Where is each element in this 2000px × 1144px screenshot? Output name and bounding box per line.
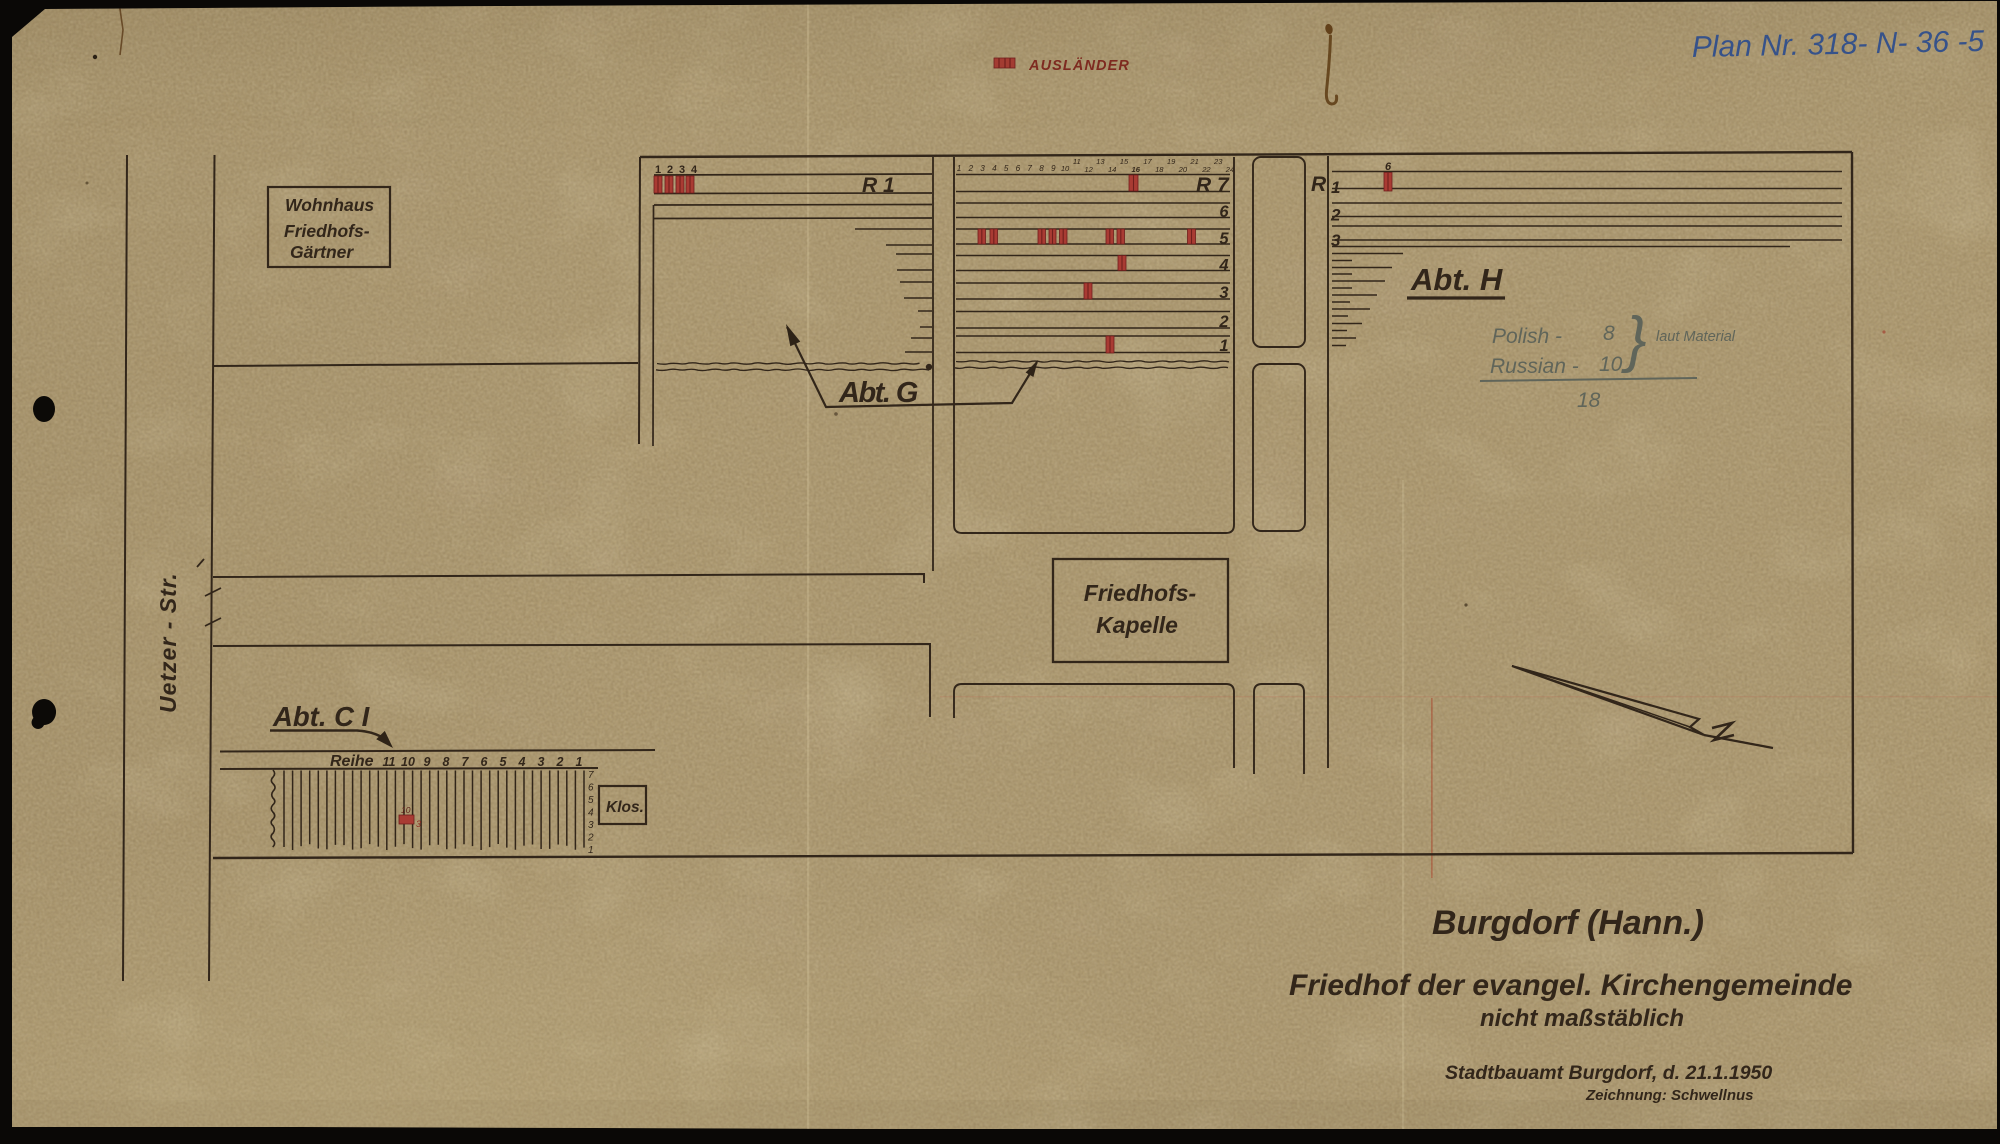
svg-text:Friedhofs-: Friedhofs- [1084, 580, 1196, 606]
svg-text:Polish -: Polish - [1492, 325, 1562, 348]
svg-text:10: 10 [1599, 353, 1623, 376]
svg-text:Reihe: Reihe [330, 753, 374, 770]
svg-text:Wohnhaus: Wohnhaus [285, 195, 374, 215]
svg-text:11: 11 [1073, 157, 1081, 166]
svg-text:nicht maßstäblich: nicht maßstäblich [1480, 1005, 1684, 1032]
svg-text:3: 3 [1219, 284, 1228, 302]
svg-text:23: 23 [1213, 157, 1223, 166]
svg-text:17: 17 [1143, 157, 1152, 166]
svg-text:R: R [1311, 173, 1327, 196]
svg-text:22: 22 [1201, 165, 1211, 174]
svg-text:1: 1 [576, 755, 583, 769]
svg-text:5: 5 [1219, 230, 1229, 248]
svg-text:18: 18 [1577, 389, 1601, 412]
svg-text:1: 1 [588, 845, 594, 856]
svg-text:8: 8 [1039, 164, 1044, 173]
svg-text:Friedhof der evangel. Kircheng: Friedhof der evangel. Kirchengemeinde [1289, 969, 1852, 1002]
svg-text:1: 1 [655, 164, 661, 176]
svg-text:Klos.: Klos. [606, 799, 644, 816]
svg-text:3: 3 [980, 164, 985, 173]
svg-text:3: 3 [416, 819, 421, 829]
svg-text:2: 2 [968, 164, 974, 173]
svg-text:4: 4 [691, 164, 698, 176]
svg-text:Stadtbauamt Burgdorf, d. 21.1.: Stadtbauamt Burgdorf, d. 21.1.1950 [1445, 1062, 1772, 1084]
svg-text:1: 1 [1331, 178, 1340, 197]
svg-text:8: 8 [443, 755, 450, 769]
svg-text:6: 6 [588, 783, 594, 794]
svg-text:5: 5 [1004, 164, 1009, 173]
svg-text:Russian -: Russian - [1490, 355, 1579, 378]
svg-text:19: 19 [1167, 157, 1176, 166]
svg-text:2: 2 [1218, 313, 1228, 331]
svg-text:5: 5 [588, 795, 594, 806]
svg-text:11: 11 [383, 755, 396, 769]
svg-text:R 1: R 1 [862, 174, 895, 197]
svg-text:1: 1 [1219, 337, 1228, 355]
svg-text:7: 7 [588, 770, 594, 781]
svg-text:14: 14 [1108, 165, 1116, 174]
svg-text:4: 4 [518, 755, 526, 769]
svg-text:Abt. G: Abt. G [838, 377, 918, 409]
svg-text:12: 12 [1084, 165, 1093, 174]
svg-text:Burgdorf (Hann.): Burgdorf (Hann.) [1432, 904, 1704, 942]
svg-text:7: 7 [1027, 164, 1032, 173]
svg-text:16: 16 [1132, 165, 1141, 174]
svg-text:2: 2 [667, 164, 673, 176]
svg-text:6: 6 [1219, 203, 1229, 221]
svg-text:3: 3 [538, 755, 545, 769]
svg-text:AUSLÄNDER: AUSLÄNDER [1028, 57, 1130, 74]
svg-text:10: 10 [1061, 164, 1070, 173]
svg-text:Plan Nr. 318- N- 36 -5: Plan Nr. 318- N- 36 -5 [1691, 25, 1984, 64]
svg-text:3: 3 [1331, 231, 1341, 250]
svg-text:6: 6 [481, 755, 489, 769]
svg-text:10: 10 [401, 805, 411, 815]
svg-text:10: 10 [401, 755, 415, 769]
svg-text:7: 7 [462, 755, 470, 769]
svg-text:18: 18 [1155, 165, 1164, 174]
svg-text:5: 5 [500, 755, 508, 769]
svg-text:6: 6 [1385, 161, 1392, 173]
svg-text:laut Material: laut Material [1656, 329, 1736, 345]
svg-text:9: 9 [424, 755, 431, 769]
svg-text:Gärtner: Gärtner [290, 242, 354, 262]
svg-text:Uetzer - Str.: Uetzer - Str. [155, 572, 181, 713]
svg-text:2: 2 [587, 833, 594, 844]
svg-text:Zeichnung: Schwellnus: Zeichnung: Schwellnus [1585, 1087, 1754, 1104]
svg-text:4: 4 [1218, 257, 1228, 275]
svg-text:1: 1 [957, 164, 962, 173]
svg-text:8: 8 [1603, 322, 1615, 345]
svg-text:6: 6 [1016, 164, 1021, 173]
svg-text:21: 21 [1189, 157, 1198, 166]
svg-text:2: 2 [556, 755, 564, 769]
svg-text:15: 15 [1120, 157, 1129, 166]
svg-text:R 7: R 7 [1196, 174, 1230, 197]
svg-text:Abt. H: Abt. H [1410, 262, 1503, 297]
svg-text:20: 20 [1178, 165, 1188, 174]
svg-text:24: 24 [1225, 165, 1234, 174]
svg-text:4: 4 [992, 164, 997, 173]
svg-text:13: 13 [1096, 157, 1105, 166]
svg-text:4: 4 [588, 808, 594, 819]
svg-text:Friedhofs-: Friedhofs- [284, 221, 370, 241]
svg-text:9: 9 [1051, 164, 1056, 173]
svg-text:3: 3 [679, 164, 685, 176]
svg-text:3: 3 [588, 820, 594, 831]
svg-text:Kapelle: Kapelle [1096, 612, 1178, 638]
svg-text:2: 2 [1330, 206, 1341, 225]
svg-text:Abt. C I: Abt. C I [272, 701, 371, 732]
